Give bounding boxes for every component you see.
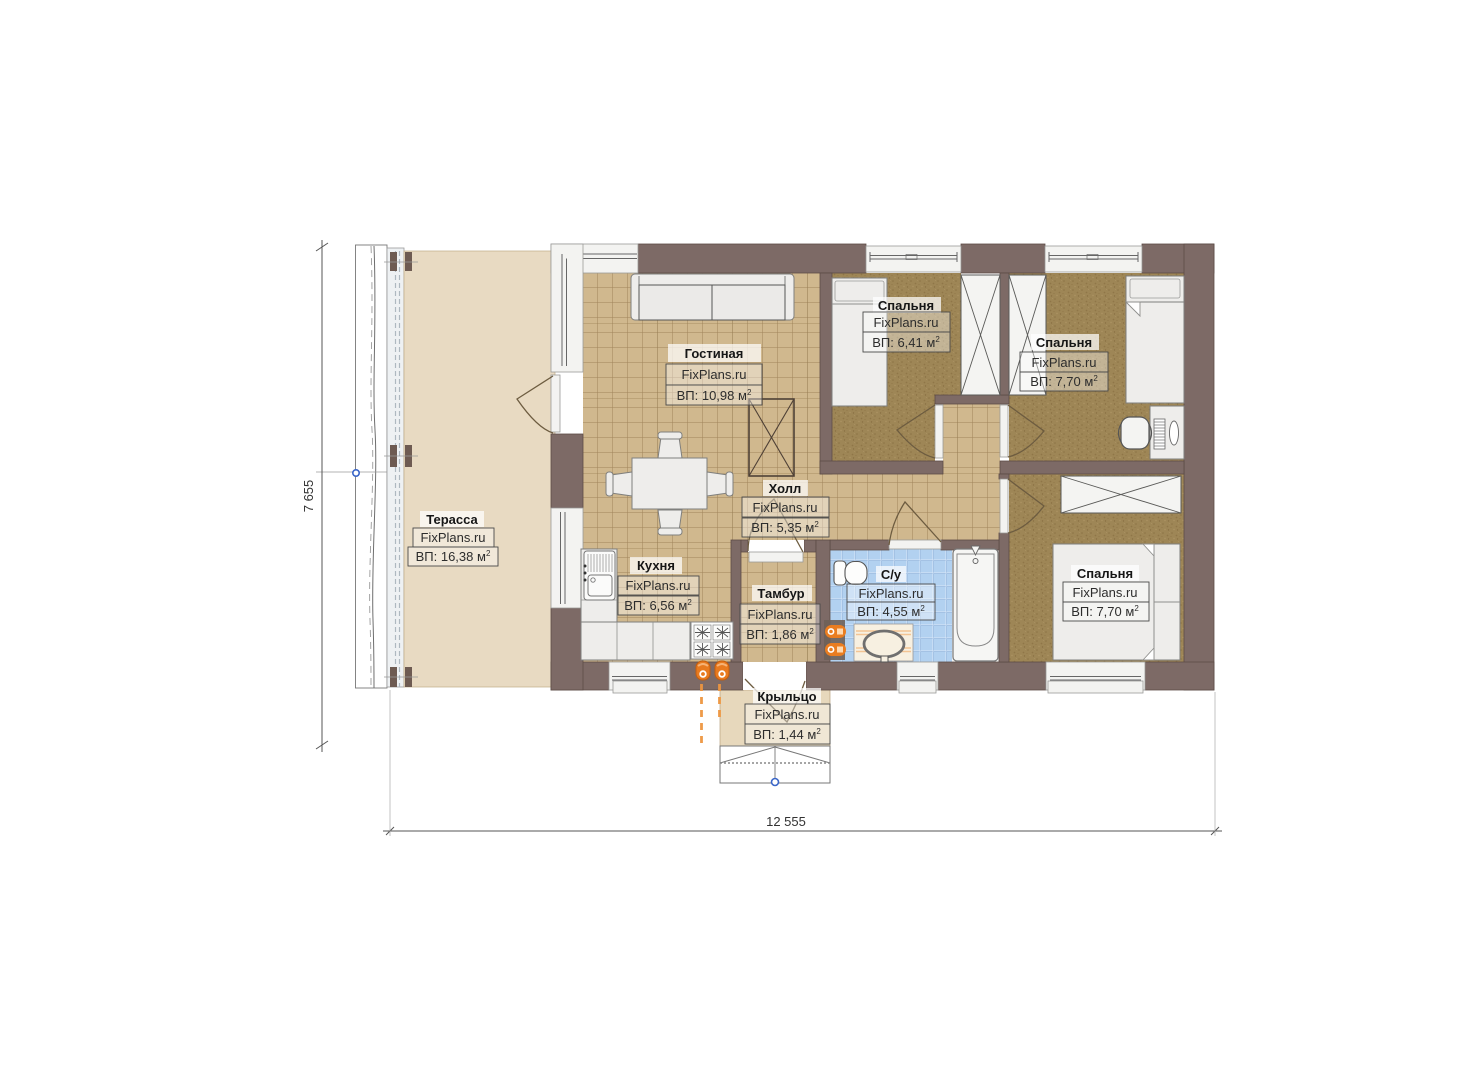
svg-text:FixPlans.ru: FixPlans.ru [754, 707, 819, 722]
svg-text:Спальня: Спальня [1036, 335, 1092, 350]
svg-text:Холл: Холл [769, 481, 802, 496]
svg-text:FixPlans.ru: FixPlans.ru [752, 500, 817, 515]
svg-text:7 655: 7 655 [301, 480, 316, 513]
svg-text:FixPlans.ru: FixPlans.ru [873, 315, 938, 330]
svg-text:ВП: 4,55 м2: ВП: 4,55 м2 [857, 604, 925, 619]
svg-text:ВП: 1,86 м2: ВП: 1,86 м2 [746, 627, 814, 642]
svg-text:FixPlans.ru: FixPlans.ru [625, 578, 690, 593]
svg-text:FixPlans.ru: FixPlans.ru [420, 530, 485, 545]
svg-text:ВП: 16,38 м2: ВП: 16,38 м2 [416, 549, 491, 564]
svg-text:Спальня: Спальня [1077, 566, 1133, 581]
svg-text:ВП: 7,70 м2: ВП: 7,70 м2 [1030, 374, 1098, 389]
svg-text:ВП: 1,44 м2: ВП: 1,44 м2 [753, 727, 821, 742]
svg-text:Спальня: Спальня [878, 298, 934, 313]
svg-text:Терасса: Терасса [426, 512, 478, 527]
svg-text:С/у: С/у [881, 567, 902, 582]
svg-text:ВП: 6,41 м2: ВП: 6,41 м2 [872, 335, 940, 350]
svg-text:ВП: 6,56 м2: ВП: 6,56 м2 [624, 598, 692, 613]
svg-text:Гостиная: Гостиная [685, 346, 744, 361]
svg-text:FixPlans.ru: FixPlans.ru [1031, 355, 1096, 370]
svg-text:FixPlans.ru: FixPlans.ru [681, 367, 746, 382]
svg-text:12 555: 12 555 [766, 814, 806, 829]
svg-text:Крыльцо: Крыльцо [757, 689, 816, 704]
svg-text:ВП: 10,98 м2: ВП: 10,98 м2 [677, 388, 752, 403]
svg-text:Тамбур: Тамбур [757, 586, 804, 601]
svg-text:FixPlans.ru: FixPlans.ru [747, 607, 812, 622]
svg-text:ВП: 7,70 м2: ВП: 7,70 м2 [1071, 604, 1139, 619]
svg-text:Кухня: Кухня [637, 558, 675, 573]
svg-text:FixPlans.ru: FixPlans.ru [858, 586, 923, 601]
svg-text:ВП: 5,35 м2: ВП: 5,35 м2 [751, 520, 819, 535]
svg-text:FixPlans.ru: FixPlans.ru [1072, 585, 1137, 600]
